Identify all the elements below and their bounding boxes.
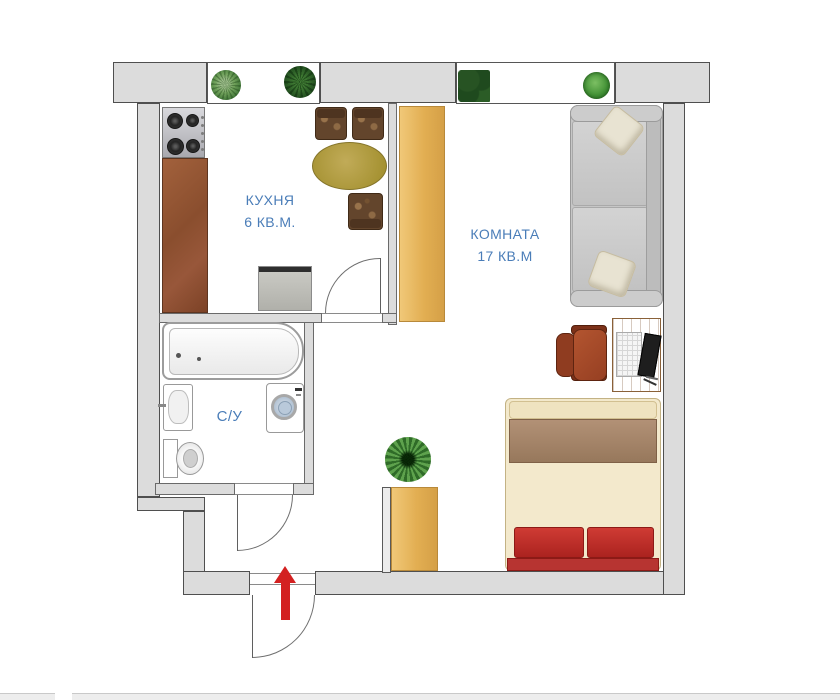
entrance-arrow-shaft bbox=[281, 581, 290, 620]
bathtub bbox=[162, 322, 304, 380]
wall-kitchen-room-divider bbox=[388, 103, 397, 325]
bed-headboard bbox=[509, 401, 657, 419]
desk bbox=[612, 318, 661, 392]
plant-icon bbox=[284, 66, 316, 98]
wall-left-step-horizontal bbox=[137, 497, 205, 511]
bathroom-door-threshold bbox=[235, 483, 293, 495]
plant-icon bbox=[385, 437, 431, 482]
wall-bathroom-bottom-left bbox=[155, 483, 235, 495]
kitchen-door-swing-arc bbox=[325, 258, 380, 313]
wall-top-middle bbox=[320, 62, 456, 103]
room-label: КОМНАТА bbox=[450, 224, 560, 244]
bathroom-door-swing-arc bbox=[237, 495, 293, 551]
kitchen-label: КУХНЯ bbox=[225, 190, 315, 210]
sofa-backrest bbox=[646, 110, 661, 302]
bathroom-door-leaf bbox=[237, 495, 238, 551]
room-area-label: 17 КВ.М bbox=[450, 246, 560, 266]
kitchen-door-leaf bbox=[380, 258, 381, 313]
floor-plan: КУХНЯ 6 КВ.М. КОМНАТА 17 КВ.М С/У bbox=[0, 0, 840, 700]
bathroom-label: С/У bbox=[202, 407, 257, 427]
wall-kitchen-bottom-right bbox=[382, 313, 397, 323]
stove-icon bbox=[162, 107, 205, 158]
chair bbox=[352, 107, 384, 140]
wall-right bbox=[663, 103, 685, 595]
washing-machine bbox=[266, 383, 304, 433]
office-chair bbox=[573, 329, 607, 381]
wall-hall-room-stub bbox=[382, 487, 391, 573]
bed-red-base bbox=[507, 558, 659, 571]
toilet bbox=[176, 442, 204, 475]
hallway-cabinet bbox=[391, 487, 438, 571]
chair bbox=[348, 193, 383, 230]
kitchen-label-block: КУХНЯ 6 КВ.М. bbox=[225, 190, 315, 232]
bottom-strip-right bbox=[72, 693, 840, 700]
wall-bathroom-right bbox=[304, 322, 314, 495]
chair bbox=[315, 107, 347, 140]
bed-red-cushion bbox=[514, 527, 584, 558]
wall-bottom-left bbox=[183, 571, 250, 595]
plant-icon bbox=[458, 70, 490, 102]
kitchen-door-threshold bbox=[322, 313, 382, 323]
bed-red-cushion bbox=[587, 527, 654, 558]
dining-table bbox=[312, 142, 387, 190]
plant-icon bbox=[211, 70, 241, 100]
bathroom-label-block: С/У bbox=[202, 407, 257, 427]
entrance-door-leaf bbox=[252, 595, 253, 658]
plant-icon bbox=[583, 72, 610, 99]
room-label-block: КОМНАТА 17 КВ.М bbox=[450, 224, 560, 266]
sink bbox=[163, 384, 193, 431]
wall-top-left bbox=[113, 62, 207, 103]
wardrobe bbox=[399, 106, 445, 322]
wall-top-right bbox=[615, 62, 710, 103]
bottom-strip-left bbox=[0, 693, 55, 700]
wall-bottom-right bbox=[315, 571, 685, 595]
wall-left bbox=[137, 103, 160, 497]
fridge-icon bbox=[258, 266, 312, 311]
kitchen-area-label: 6 КВ.М. bbox=[225, 212, 315, 232]
wall-bathroom-bottom-right bbox=[293, 483, 314, 495]
bed-blanket bbox=[509, 419, 657, 463]
kitchen-counter bbox=[162, 158, 208, 313]
